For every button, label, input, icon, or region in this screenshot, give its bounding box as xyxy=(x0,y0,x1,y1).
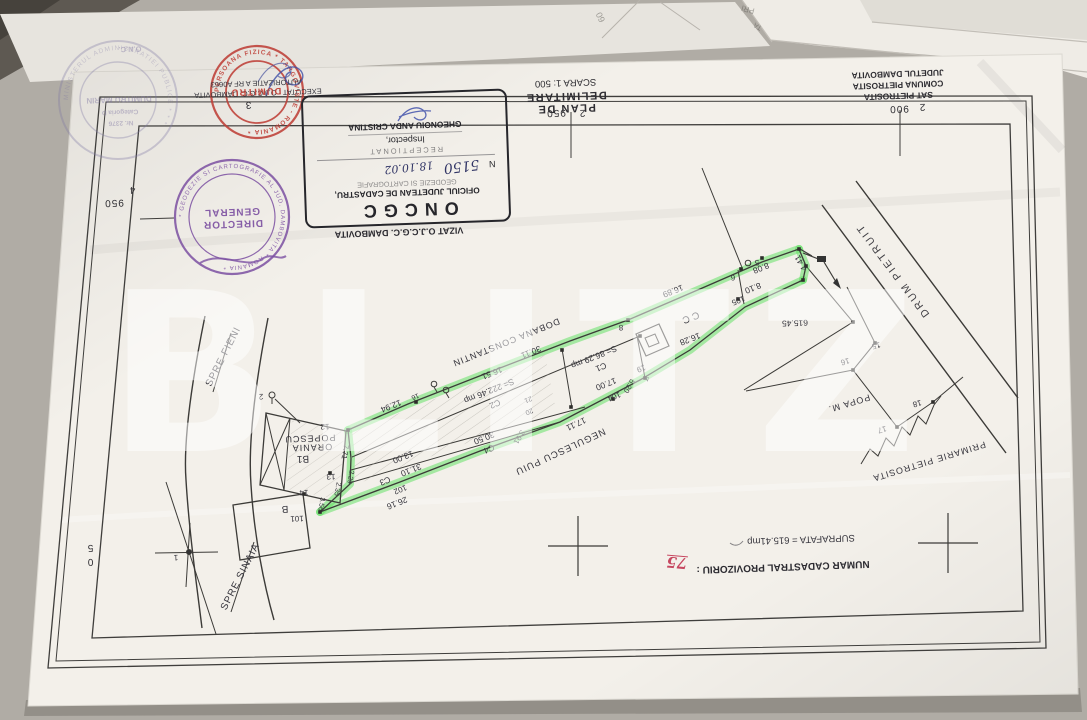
oncgc-number-prefix: N xyxy=(489,159,496,169)
title-block: PLAN DE DELIMITARE SCARA 1: 500 xyxy=(495,75,636,117)
oncgc-number-handwritten: 5150 xyxy=(443,156,480,176)
oncgc-date-handwritten: 18.10.02 xyxy=(384,158,434,176)
oncgc-receptionat: RECEPTIONAT xyxy=(368,145,443,157)
location-block: SAT PIETROSITA COMUNA PIETROSITA JUDETUL… xyxy=(836,66,959,103)
oncgc-inspector-name: GHEONOIU ANDA CRISTINA xyxy=(348,119,462,136)
oncgc-stamp-box: ONCGC OFICIUL JUDETEAN DE CADASTRU, GEOD… xyxy=(301,88,512,228)
paper-sheet xyxy=(28,54,1078,706)
oncgc-inspector-label: Inspector, xyxy=(386,134,425,145)
plan-title: PLAN DE DELIMITARE xyxy=(496,88,637,117)
oncgc-agency: ONCGC xyxy=(356,197,459,222)
photo-of-cadastral-plan: MINISTERUL ADMINISTRATIEI PUBLICE * * * … xyxy=(0,0,1087,720)
